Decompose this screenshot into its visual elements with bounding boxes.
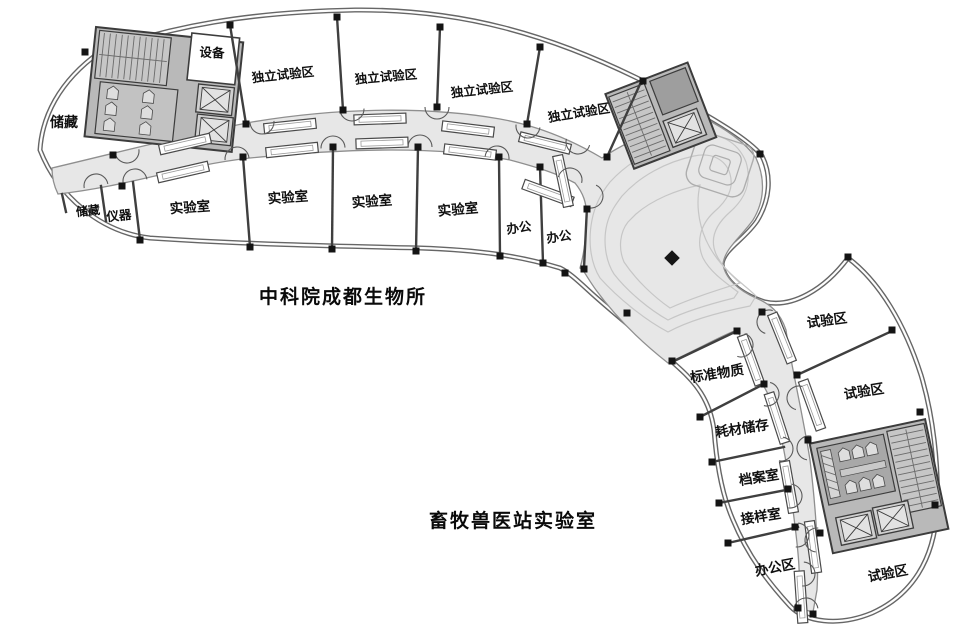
- column-marker: [437, 24, 444, 31]
- column-marker: [795, 605, 802, 612]
- room-label-storage-lower: 储藏: [75, 202, 100, 219]
- bench: [354, 113, 406, 125]
- column-marker: [761, 381, 768, 388]
- room-label-lab-1: 实验室: [169, 198, 211, 217]
- column-marker: [669, 358, 676, 365]
- column-marker: [584, 206, 591, 213]
- column-marker: [734, 328, 741, 335]
- column-marker: [624, 310, 631, 317]
- column-marker: [697, 414, 704, 421]
- column-marker: [794, 372, 801, 379]
- column-marker: [413, 248, 420, 255]
- service-core-northwest: [85, 23, 244, 152]
- column-marker: [805, 437, 812, 444]
- caption-institute: 中科院成都生物所: [259, 285, 427, 308]
- room-label-instruments: 仪器: [105, 208, 133, 225]
- captions: 中科院成都生物所 畜牧兽医站实验室: [259, 285, 597, 532]
- column-marker: [604, 154, 611, 161]
- column-marker: [247, 244, 254, 251]
- column-marker: [243, 121, 250, 128]
- column-marker: [524, 121, 531, 128]
- column-marker: [540, 260, 547, 267]
- column-marker: [562, 270, 569, 277]
- column-marker: [340, 107, 347, 114]
- room-label-lab-2: 实验室: [267, 188, 309, 207]
- column-marker: [810, 611, 817, 618]
- column-marker: [137, 237, 144, 244]
- stairs-icon: [95, 30, 172, 85]
- column-marker: [785, 486, 792, 493]
- column-marker: [496, 154, 503, 161]
- column-marker: [227, 22, 234, 29]
- room-label-storage-upper: 储藏: [49, 114, 78, 130]
- column-marker: [110, 152, 117, 159]
- room-label-equipment: 设备: [199, 44, 225, 60]
- column-marker: [757, 151, 764, 158]
- caption-veterinary: 畜牧兽医站实验室: [429, 509, 597, 532]
- column-marker: [497, 253, 504, 260]
- column-marker: [334, 14, 341, 21]
- room-label-lab-3: 实验室: [351, 192, 393, 211]
- column-marker: [917, 409, 924, 416]
- column-marker: [415, 144, 422, 151]
- column-marker: [932, 502, 939, 509]
- column-marker: [329, 246, 336, 253]
- column-marker: [759, 309, 766, 316]
- service-core-southeast: [810, 419, 949, 553]
- toilet-stalls-icon: [95, 82, 178, 142]
- column-marker: [119, 183, 126, 190]
- column-marker: [725, 540, 732, 547]
- column-marker: [240, 154, 247, 161]
- column-marker: [640, 78, 647, 85]
- column-marker: [709, 459, 716, 466]
- column-marker: [845, 254, 852, 261]
- column-marker: [434, 104, 441, 111]
- elevator-icon: [196, 84, 235, 116]
- column-marker: [537, 164, 544, 171]
- column-marker: [792, 524, 799, 531]
- floor-plan-canvas: 储藏 设备 独立试验区 独立试验区 独立试验区 独立试验区 储藏 仪器 实验室 …: [0, 0, 960, 641]
- column-marker: [330, 144, 337, 151]
- floor-plan-page: 储藏 设备 独立试验区 独立试验区 独立试验区 独立试验区 储藏 仪器 实验室 …: [0, 0, 960, 641]
- column-marker: [889, 327, 896, 334]
- column-marker: [537, 44, 544, 51]
- bench: [356, 137, 408, 149]
- column-marker: [82, 49, 89, 56]
- column-marker: [817, 530, 824, 537]
- column-marker: [716, 500, 723, 507]
- column-marker: [581, 266, 588, 273]
